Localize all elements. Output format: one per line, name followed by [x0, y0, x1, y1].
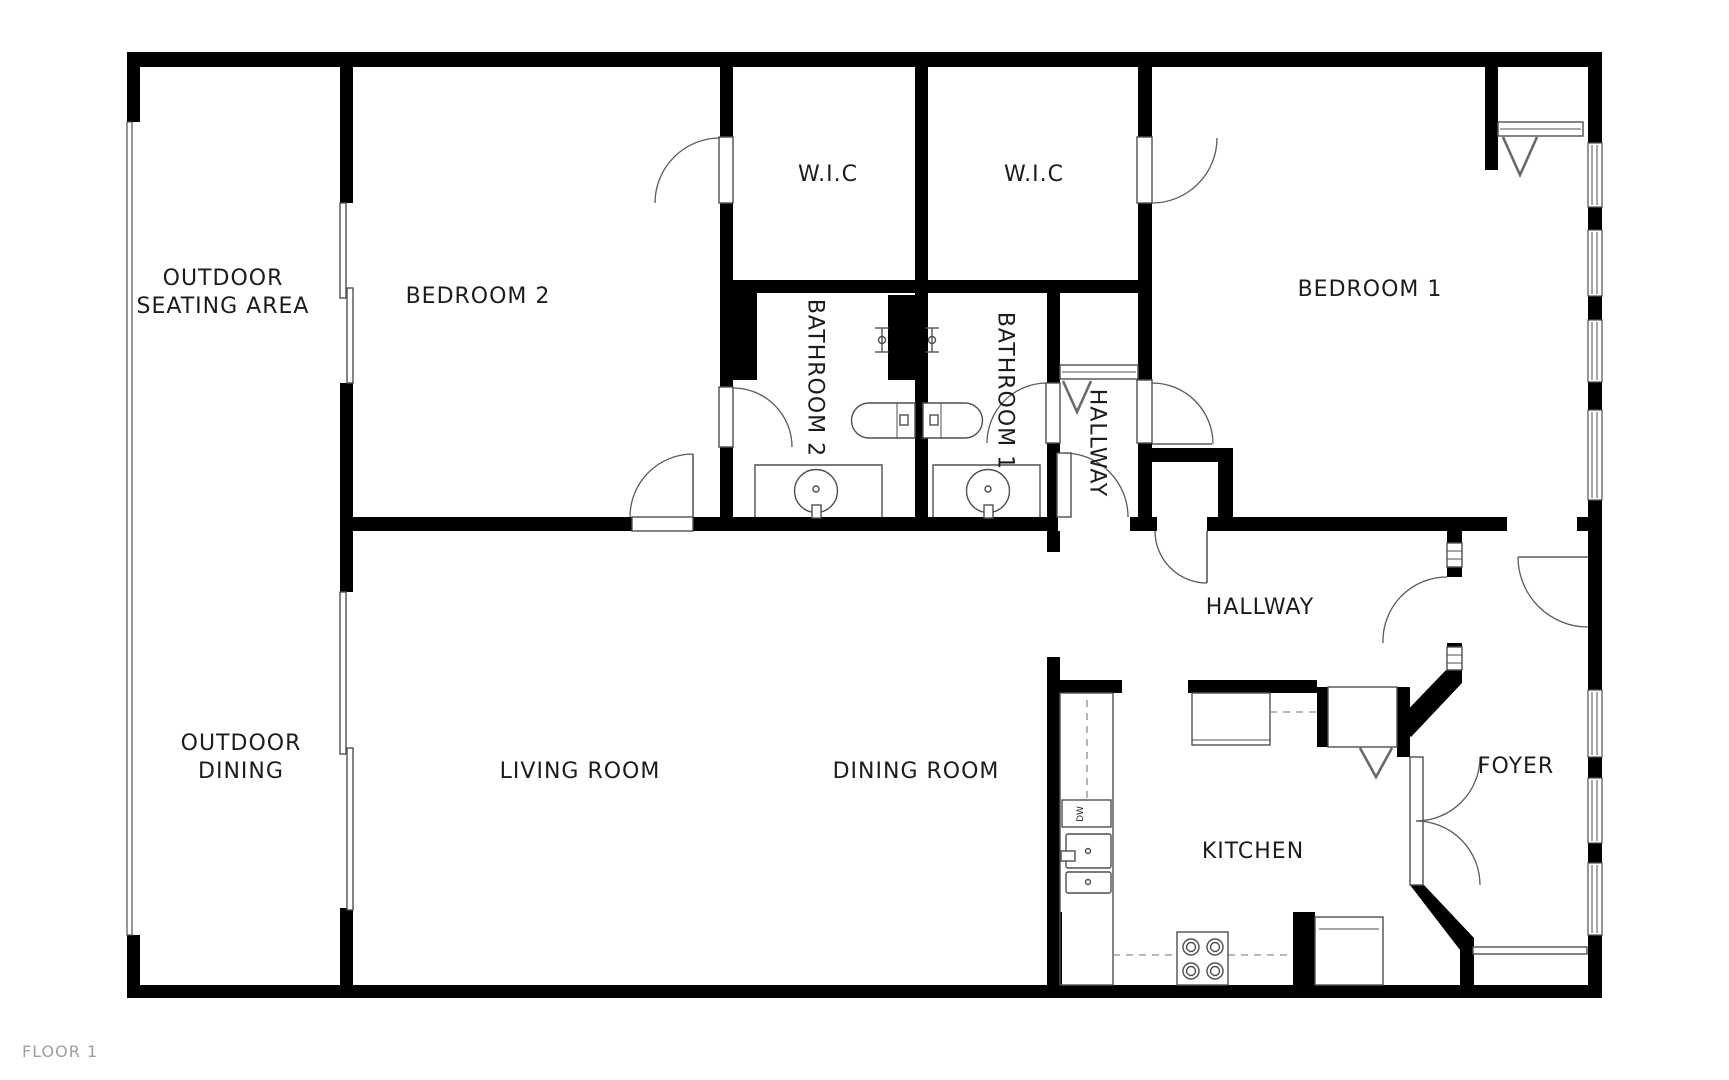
- wall-segment: [340, 52, 353, 203]
- wall-segment: [1577, 517, 1588, 531]
- wall-segment: [1317, 687, 1328, 747]
- wall-segment: [127, 52, 140, 122]
- door-swing-arc: [655, 138, 720, 203]
- room-label-bedroom2: BEDROOM 2: [406, 284, 551, 309]
- door-leaf: [1137, 137, 1152, 203]
- room-label-dining-room: DINING ROOM: [833, 759, 1000, 784]
- doors: [630, 137, 1588, 885]
- room-label-outdoor-seating: OUTDOOR: [163, 266, 284, 291]
- room-label-hallway-upper: HALLWAY: [1085, 389, 1110, 497]
- wall-segment: [720, 287, 757, 380]
- wall-segment: [1588, 296, 1602, 320]
- wall-segment: [340, 517, 632, 531]
- wall-segment: [127, 985, 1602, 998]
- door-leaf: [1046, 383, 1060, 443]
- wall-segment: [1447, 567, 1462, 577]
- floor-plan-canvas: OUTDOOR SEATING AREA BEDROOM 2 W.I.C W.I…: [0, 0, 1729, 1080]
- dishwasher-label: DW: [1076, 806, 1086, 822]
- wall-segment: [1293, 912, 1315, 985]
- wall-segment: [1485, 66, 1498, 170]
- kitchen-counter: [1192, 693, 1270, 745]
- wall-segment: [1207, 517, 1507, 531]
- door-swing-arc: [1416, 821, 1480, 885]
- wall-segment: [1047, 531, 1060, 552]
- wall-segment: [1588, 757, 1602, 778]
- wall-segment: [1218, 462, 1233, 517]
- bathtub: [852, 403, 916, 438]
- wall-segment: [340, 908, 353, 985]
- wall-segment: [127, 935, 140, 998]
- door-swing-arc: [1383, 577, 1447, 643]
- wall-segment: [1588, 935, 1602, 998]
- door-swing-arc: [1155, 531, 1207, 583]
- room-label-living-room: LIVING ROOM: [500, 759, 661, 784]
- wall-segment: [1588, 843, 1602, 863]
- wall-segment: [693, 517, 1058, 531]
- room-label-wic-right: W.I.C: [1004, 162, 1064, 187]
- sliding-door-upper: [340, 203, 353, 383]
- window: [1588, 230, 1602, 296]
- bifold-door-chevron: [1503, 137, 1537, 175]
- sink-faucet: [984, 505, 993, 518]
- sliding-door-lower: [340, 592, 353, 910]
- bifold-door-chevron: [1360, 748, 1392, 777]
- room-label-wic-left: W.I.C: [798, 162, 858, 187]
- door-swing-arc: [630, 454, 693, 517]
- bathtub: [923, 403, 983, 438]
- wall-segment: [340, 383, 353, 592]
- wall-segment: [1588, 52, 1602, 143]
- room-label-outdoor-dining: OUTDOOR: [181, 731, 302, 756]
- wall-segment: [1047, 293, 1060, 383]
- kitchen-faucet: [1061, 851, 1075, 861]
- window: [1588, 778, 1602, 843]
- door-swing-arc: [1152, 138, 1217, 203]
- room-label-kitchen: KITCHEN: [1202, 839, 1304, 864]
- wall-segment: [888, 295, 915, 380]
- sink-faucet: [812, 505, 821, 518]
- wall-segment: [1138, 443, 1152, 517]
- door-swing-arc: [1152, 383, 1213, 444]
- door-leaf: [1057, 453, 1071, 517]
- room-label-bedroom1: BEDROOM 1: [1298, 277, 1443, 302]
- shower-valve-icon: [875, 328, 889, 352]
- door-swing-arc: [1518, 557, 1588, 627]
- door-leaf: [632, 517, 693, 531]
- wall-segment: [720, 447, 733, 517]
- balcony-railing: [127, 122, 132, 935]
- wall-segment: [1460, 938, 1474, 985]
- wall-segment: [1138, 66, 1152, 137]
- pantry-cabinet: [1328, 687, 1397, 747]
- wall-segment: [720, 66, 733, 137]
- window: [1588, 143, 1602, 207]
- wall-segment: [720, 380, 733, 387]
- door-leaf: [719, 387, 733, 447]
- door-swing-arc: [733, 388, 792, 447]
- window: [1588, 863, 1602, 935]
- wall-segment: [1047, 657, 1060, 912]
- wall-segment: [720, 280, 1152, 293]
- room-label-outdoor-dining: DINING: [198, 759, 284, 784]
- wall-segment: [1588, 207, 1602, 230]
- window: [1588, 410, 1602, 500]
- wall-segment: [1447, 530, 1462, 543]
- door-leaf: [1137, 380, 1152, 443]
- kitchen-counter: [1060, 693, 1113, 985]
- floor-title: FLOOR 1: [22, 1042, 98, 1061]
- room-label-foyer: FOYER: [1478, 754, 1554, 779]
- wall-segment: [1188, 680, 1317, 693]
- room-label-bathroom2: BATHROOM 2: [803, 299, 828, 457]
- wall-segment: [1588, 382, 1602, 410]
- wall-segment: [1588, 500, 1602, 690]
- wall-segment: [1060, 680, 1122, 693]
- entry-threshold: [1473, 947, 1587, 954]
- room-label-hallway-main: HALLWAY: [1206, 595, 1314, 620]
- door-sidelight: [1447, 543, 1462, 670]
- refrigerator: [1315, 917, 1383, 985]
- wall-segment: [1130, 517, 1157, 531]
- wall-segment: [720, 203, 733, 287]
- window: [1588, 320, 1602, 382]
- dishwasher: [1062, 800, 1111, 827]
- door-swing-arc: [1416, 757, 1480, 821]
- door-leaf: [719, 137, 733, 203]
- room-label-outdoor-seating: SEATING AREA: [137, 294, 310, 319]
- kitchen-sink-basin: [1066, 872, 1111, 893]
- window: [1588, 690, 1602, 757]
- room-label-bathroom1: BATHROOM 1: [993, 312, 1018, 470]
- floor-plan-page: OUTDOOR SEATING AREA BEDROOM 2 W.I.C W.I…: [0, 0, 1729, 1080]
- wall-segment: [1152, 448, 1233, 462]
